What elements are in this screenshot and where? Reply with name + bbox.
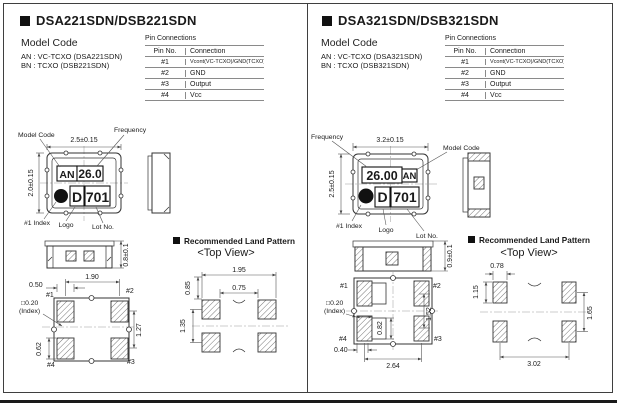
model-code-heading: Model Code	[21, 37, 122, 49]
pin-connections-table: Pin No. Connection #1 Vcont(VC-TCXO)/GND…	[445, 45, 564, 101]
dim-package-width: 2.5±0.15	[70, 137, 97, 144]
square-bullet-icon	[173, 237, 180, 244]
dim-land-span-y: 1.65	[587, 306, 594, 320]
dim-land-span-y: 1.35	[180, 319, 187, 333]
dim-land-pad-h: 0.85	[185, 281, 192, 295]
pin-conn: Vcc	[485, 92, 564, 99]
table-row: #1 Vcont(VC-TCXO)/GND(TCXO)	[145, 57, 264, 68]
label-logo: Logo	[378, 227, 393, 234]
label-model-code: Model Code	[443, 145, 480, 152]
pin-no: #1	[445, 59, 485, 66]
dim-land-inner-x: 0.75	[232, 285, 246, 292]
model-code-block-221: Model Code AN : VC-TCXO (DSA221SDN) BN :…	[21, 37, 122, 70]
table-row: #4 Vcc	[445, 90, 564, 101]
dim-package-height: 2.5±0.15	[329, 170, 336, 197]
label-lot: Lot No.	[92, 224, 114, 231]
marking-lot: 701	[86, 189, 110, 205]
pin-conn: GND	[485, 70, 564, 77]
drawings-221: AN 26.0 D 701 2.5±0.15 2.0±0.15 Model Co…	[4, 120, 304, 390]
model-code-line-an: AN : VC-TCXO (DSA221SDN)	[21, 52, 122, 61]
label-model-code: Model Code	[18, 132, 55, 139]
dim-thickness: 0.8±0.1	[123, 243, 130, 266]
index-size-label: □0.20	[326, 300, 344, 307]
package-bottom-view-321: #1 #2 #4 #3 □0.20 (Index) 1.52 0.82 0.40…	[324, 272, 442, 370]
page-title: DSA321SDN/DSB321SDN	[338, 13, 499, 28]
pin-conn: Vcc	[185, 92, 264, 99]
land-pattern-221: Recommended Land Pattern <Top View> 1.95…	[173, 237, 295, 352]
label-lot: Lot No.	[416, 233, 438, 240]
datasheet-page: DSA221SDN/DSB221SDN Model Code AN : VC-T…	[0, 0, 617, 404]
panel-divider	[307, 3, 308, 392]
table-row: #2 GND	[445, 68, 564, 79]
model-code-heading: Model Code	[321, 37, 422, 49]
dim-pad-height: 0.62	[36, 342, 43, 356]
model-code-line-an: AN : VC-TCXO (DSA321SDN)	[321, 52, 422, 61]
marking-lot: 701	[393, 189, 417, 205]
package-edge-view-221: 0.8±0.1	[45, 241, 130, 268]
panel-221-title: DSA221SDN/DSB221SDN	[20, 13, 197, 28]
model-code-line-bn: BN : TCXO (DSB321SDN)	[321, 61, 422, 70]
panel-321-title: DSA321SDN/DSB321SDN	[322, 13, 499, 28]
pin3-label: #3	[127, 359, 135, 366]
pin4-label: #4	[47, 362, 55, 369]
pin-conn: Vcont(VC-TCXO)/GND(TCXO)	[485, 59, 564, 65]
land-pattern-title: Recommended Land Pattern	[184, 237, 295, 246]
pin1-label: #1	[340, 283, 348, 290]
pin-conn: Vcont(VC-TCXO)/GND(TCXO)	[185, 59, 264, 65]
land-pattern-subtitle: <Top View>	[197, 247, 254, 259]
pin-no: #3	[445, 81, 485, 88]
index-dot	[54, 189, 68, 203]
pin-table-header: Pin No. Connection	[145, 46, 264, 57]
pin-no: #4	[145, 92, 185, 99]
label-frequency: Frequency	[114, 127, 147, 134]
package-top-view-221: AN 26.0 D 701 2.5±0.15 2.0±0.15 Model Co…	[18, 127, 147, 231]
pin2-label: #2	[433, 283, 441, 290]
col-connection: Connection	[185, 48, 264, 55]
land-pattern-title: Recommended Land Pattern	[479, 236, 590, 245]
marking-logo: D	[72, 189, 82, 205]
land-pattern-subtitle: <Top View>	[500, 247, 557, 259]
square-bullet-icon	[322, 16, 332, 26]
square-bullet-icon	[20, 16, 30, 26]
pin-connections-title: Pin Connections	[445, 35, 564, 42]
index-dot	[359, 189, 374, 204]
table-row: #4 Vcc	[145, 90, 264, 101]
marking-frequency: 26.00	[366, 169, 397, 183]
col-connection: Connection	[485, 48, 564, 55]
label-index: #1 Index	[24, 220, 51, 227]
marking-logo: D	[377, 189, 387, 205]
marking-frequency: 26.0	[78, 167, 102, 181]
square-bullet-icon	[468, 236, 475, 243]
package-side-view-321	[463, 153, 490, 217]
pin-no: #2	[145, 70, 185, 77]
model-code-block-321: Model Code AN : VC-TCXO (DSA321SDN) BN :…	[321, 37, 422, 70]
table-row: #3 Output	[445, 79, 564, 90]
col-pin-no: Pin No.	[445, 48, 485, 55]
pin-conn: GND	[185, 70, 264, 77]
pin1-label: #1	[46, 292, 54, 299]
marking-model-code: AN	[403, 171, 417, 182]
pin-conn: Output	[185, 81, 264, 88]
table-row: #3 Output	[145, 79, 264, 90]
label-index: #1 Index	[336, 223, 363, 230]
col-pin-no: Pin No.	[145, 48, 185, 55]
package-top-view-321: 26.00 AN D 701 3.2±0.15 2.5±0.15 Frequen…	[311, 134, 480, 240]
dim-pad-offset: 0.40	[334, 347, 348, 354]
pin-connections-321: Pin Connections Pin No. Connection #1 Vc…	[445, 35, 564, 101]
drawings-321: 26.00 AN D 701 3.2±0.15 2.5±0.15 Frequen…	[310, 120, 610, 390]
pin3-label: #3	[434, 336, 442, 343]
dim-pad-span-y: 1.27	[136, 323, 143, 337]
index-size-label: □0.20	[21, 300, 39, 307]
pin-no: #3	[145, 81, 185, 88]
dim-thickness: 0.9±0.1	[447, 244, 454, 267]
model-code-line-bn: BN : TCXO (DSB221SDN)	[21, 61, 122, 70]
pin-conn: Output	[485, 81, 564, 88]
dim-package-width: 3.2±0.15	[376, 137, 403, 144]
dim-land-span-x: 3.02	[527, 361, 541, 368]
pin-no: #1	[145, 59, 185, 66]
dim-land-outer-x: 1.95	[232, 267, 246, 274]
package-bottom-view-221: #1 #2 #4 #3 1.90 0.50 □0.20 (Index) 1.27…	[19, 274, 143, 369]
dim-pad-span-x: 1.90	[85, 274, 99, 281]
table-row: #2 GND	[145, 68, 264, 79]
package-edge-view-321: 0.9±0.1	[353, 241, 454, 271]
index-word-label: (Index)	[19, 308, 40, 315]
dim-pad-span-y: 1.52	[426, 307, 433, 321]
pin4-label: #4	[339, 336, 347, 343]
index-word-label: (Index)	[324, 308, 345, 315]
pin-no: #2	[445, 70, 485, 77]
page-title: DSA221SDN/DSB221SDN	[36, 13, 197, 28]
dim-land-pad-w: 0.78	[490, 263, 504, 270]
pin-table-header: Pin No. Connection	[445, 46, 564, 57]
page-bottom-edge	[0, 400, 617, 403]
pin-connections-title: Pin Connections	[145, 35, 264, 42]
dim-pad-width: 0.50	[29, 282, 43, 289]
dim-inner-width: 0.82	[377, 321, 384, 335]
label-logo: Logo	[58, 222, 73, 229]
pin2-label: #2	[126, 288, 134, 295]
dim-land-pad-h: 1.15	[473, 285, 480, 299]
table-row: #1 Vcont(VC-TCXO)/GND(TCXO)	[445, 57, 564, 68]
land-pattern-321: Recommended Land Pattern <Top View> 0.78…	[468, 236, 594, 368]
dim-package-height: 2.0±0.15	[28, 169, 35, 196]
package-side-view-221	[148, 153, 170, 213]
marking-model-code: AN	[59, 169, 74, 181]
label-frequency: Frequency	[311, 134, 344, 141]
dim-pad-span-x: 2.64	[386, 363, 400, 370]
pin-connections-table: Pin No. Connection #1 Vcont(VC-TCXO)/GND…	[145, 45, 264, 101]
pin-connections-221: Pin Connections Pin No. Connection #1 Vc…	[145, 35, 264, 101]
pin-no: #4	[445, 92, 485, 99]
